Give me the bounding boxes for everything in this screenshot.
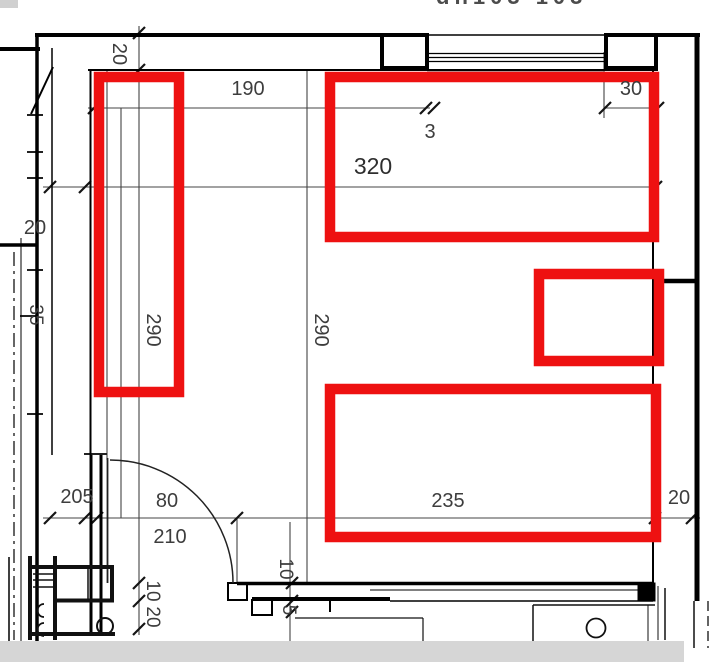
clipped-title-text: dn103 103 xyxy=(436,0,646,9)
corner-gray-fragment xyxy=(0,0,18,8)
dim-label-35-left-edge: 35 xyxy=(24,300,46,330)
dim-label-3: 3 xyxy=(420,121,440,143)
dim-label-290-mid: 290 xyxy=(310,307,332,353)
dim-label-5-bottom-mid: 5 xyxy=(277,599,299,621)
highlight-rect-bottom-wide xyxy=(330,389,656,537)
dim-label-20-right: 20 xyxy=(659,487,699,509)
highlight-rects xyxy=(99,77,659,537)
dim-label-20-top: 20 xyxy=(108,34,130,74)
furniture-fixtures xyxy=(28,556,708,648)
dim-label-190: 190 xyxy=(223,78,273,100)
dim-label-20-left: 20 xyxy=(15,217,55,239)
dim-label-80: 80 xyxy=(147,490,187,512)
dim-label-30: 30 xyxy=(611,78,651,100)
door-arc xyxy=(110,460,233,583)
dim-label-235: 235 xyxy=(421,490,475,512)
highlight-rect-small-right xyxy=(539,274,659,361)
dim-label-320: 320 xyxy=(343,153,403,179)
floor-plan: dn103 103 190 30 3 320 20 20 290 290 205… xyxy=(0,0,714,662)
dim-label-20-bottom-left: 20 xyxy=(141,600,163,634)
floor-plan-drawing xyxy=(0,0,714,662)
dim-label-205: 205 xyxy=(50,486,104,508)
dim-label-290-left: 290 xyxy=(142,307,164,353)
dim-label-10-bottom-mid: 10 xyxy=(274,552,296,586)
door-swing xyxy=(108,458,234,583)
footer-gray-bar xyxy=(0,641,684,662)
wall-lines xyxy=(0,33,700,648)
dim-label-210: 210 xyxy=(145,526,195,548)
